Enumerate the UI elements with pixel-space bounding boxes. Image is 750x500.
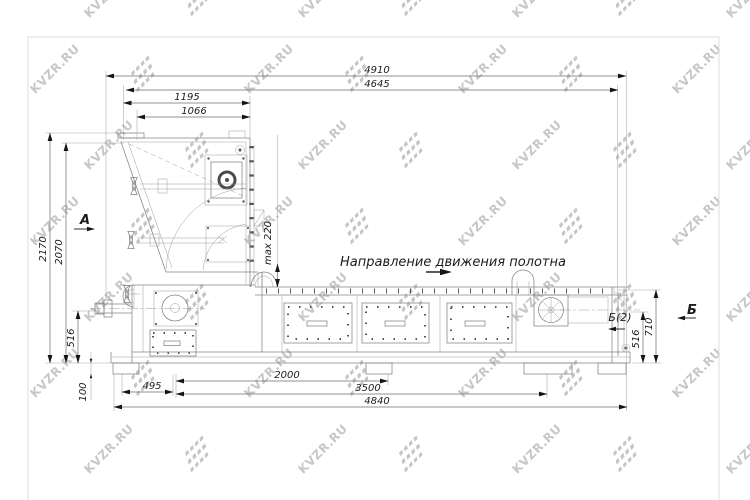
view-b-arrow-icon bbox=[677, 316, 685, 320]
view-label-b: Б bbox=[687, 303, 697, 318]
dim-516-right: 516 bbox=[631, 329, 642, 348]
access-panel bbox=[284, 303, 352, 343]
handwheel-icon bbox=[128, 232, 134, 249]
dim-4840: 4840 bbox=[364, 396, 389, 407]
dim-4910: 4910 bbox=[364, 65, 389, 76]
drawing-sheet: KVZR.RUKVZR.RUKVZR.RUKVZR.RUKVZR.RUKVZR.… bbox=[0, 0, 750, 500]
access-panel bbox=[362, 303, 429, 343]
view-a-arrow-icon bbox=[87, 227, 95, 231]
dim-1066: 1066 bbox=[181, 106, 206, 117]
dim-495: 495 bbox=[142, 381, 161, 392]
view-label-a: А bbox=[79, 213, 90, 228]
dim-4645: 4645 bbox=[364, 79, 389, 90]
belt-direction-label: Направление движения полотна bbox=[340, 255, 566, 270]
extension-lines bbox=[45, 71, 661, 411]
dim-2170: 2170 bbox=[38, 236, 49, 261]
view-label-b2: Б(2) bbox=[608, 311, 631, 324]
drive-unit bbox=[90, 272, 262, 363]
dim-2000: 2000 bbox=[274, 370, 299, 381]
access-panel bbox=[447, 303, 512, 343]
dim-710: 710 bbox=[644, 317, 655, 336]
dim-516-left: 516 bbox=[66, 328, 77, 347]
conveyor-body bbox=[111, 287, 630, 374]
dim-2070: 2070 bbox=[54, 239, 65, 264]
hopper-assembly bbox=[118, 131, 277, 303]
dim-1195: 1195 bbox=[174, 92, 199, 103]
dim-3500: 3500 bbox=[355, 383, 380, 394]
dim-100: 100 bbox=[78, 382, 89, 401]
technical-drawing: 4910 4645 1195 1066 2170 2070 516 100 49… bbox=[0, 0, 750, 500]
dim-max-220: max 220 bbox=[263, 221, 274, 265]
